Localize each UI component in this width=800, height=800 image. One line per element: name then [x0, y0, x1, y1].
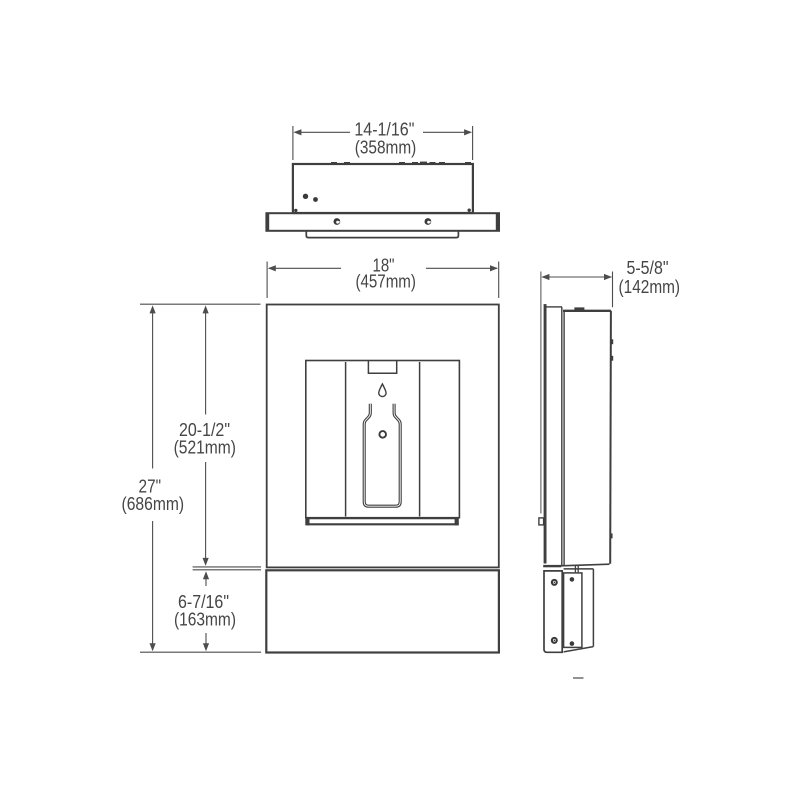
- svg-text:5-5/8": 5-5/8": [627, 258, 669, 278]
- svg-text:(358mm): (358mm): [355, 137, 417, 157]
- svg-text:(457mm): (457mm): [355, 271, 416, 291]
- svg-text:(686mm): (686mm): [122, 494, 185, 514]
- svg-text:(142mm): (142mm): [619, 277, 681, 297]
- svg-text:(163mm): (163mm): [174, 610, 236, 630]
- svg-text:(521mm): (521mm): [174, 438, 236, 458]
